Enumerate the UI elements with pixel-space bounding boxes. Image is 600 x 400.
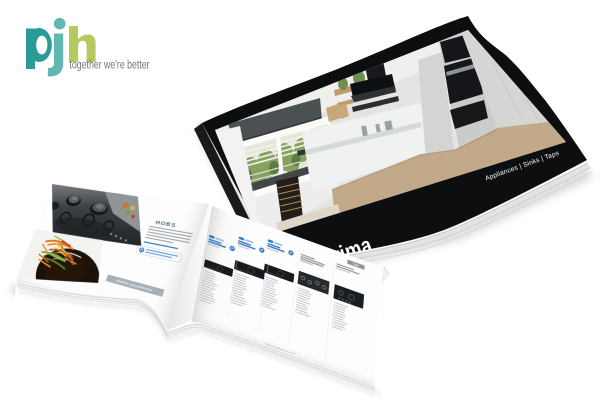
svg-text:together we're better: together we're better xyxy=(70,60,150,72)
